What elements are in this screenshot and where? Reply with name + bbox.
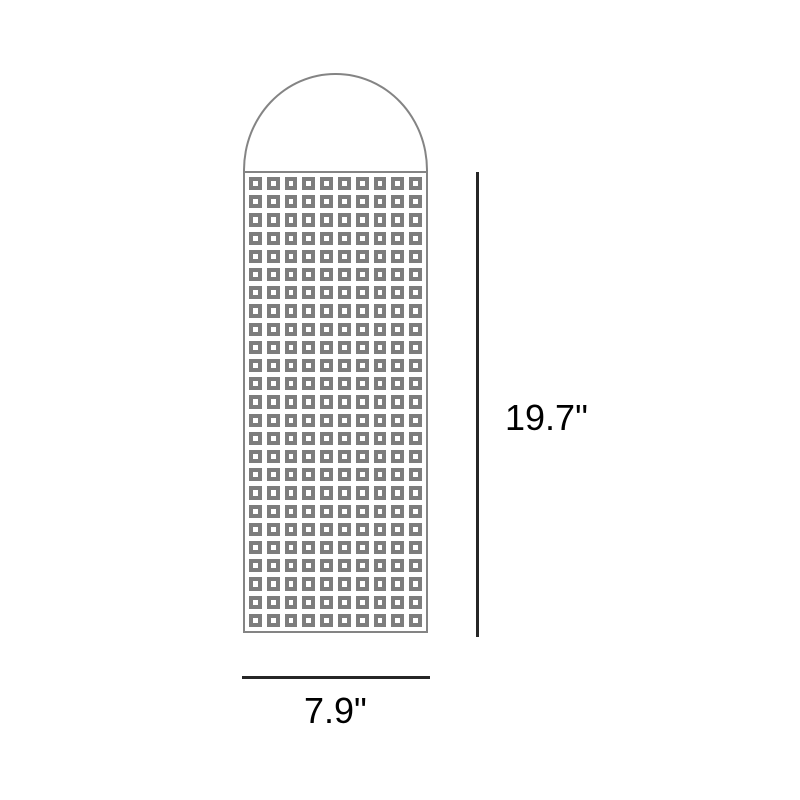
grid-cell — [391, 486, 404, 499]
grid-cell — [356, 468, 369, 481]
grid-cell — [302, 250, 315, 263]
grid-cell — [356, 541, 369, 554]
grid-cell — [391, 596, 404, 609]
grid-cell — [302, 577, 315, 590]
grid-cell — [267, 432, 280, 445]
grid-cell — [409, 268, 422, 281]
grid-cell — [267, 395, 280, 408]
grid-cell — [391, 341, 404, 354]
grid-cell — [285, 432, 298, 445]
grid-cell — [302, 341, 315, 354]
grid-cell — [391, 468, 404, 481]
grid-cell — [338, 559, 351, 572]
grid-cell — [320, 450, 333, 463]
grid-cell — [374, 432, 387, 445]
grid-cell — [374, 213, 387, 226]
grid-cell — [320, 559, 333, 572]
grid-cell — [249, 323, 262, 336]
grid-cell — [338, 304, 351, 317]
height-dimension-line — [476, 172, 479, 637]
grid-cell — [374, 250, 387, 263]
grid-cell — [374, 577, 387, 590]
grid-cell — [285, 505, 298, 518]
grid-cell — [374, 195, 387, 208]
grid-cell — [320, 523, 333, 536]
grid-cell — [391, 395, 404, 408]
grid-cell — [267, 213, 280, 226]
grid-cell — [320, 304, 333, 317]
grid-cell — [338, 486, 351, 499]
grid-cell — [285, 559, 298, 572]
grid-cell — [249, 377, 262, 390]
grid-cell — [267, 596, 280, 609]
grid-cell — [338, 195, 351, 208]
grid-cell — [285, 268, 298, 281]
grid-cell — [391, 559, 404, 572]
width-dimension-line — [242, 676, 430, 679]
grid-cell — [356, 614, 369, 627]
grid-cell — [391, 359, 404, 372]
grid-cell — [356, 268, 369, 281]
grid-cell — [285, 541, 298, 554]
grid-cell — [338, 523, 351, 536]
grid-cell — [374, 541, 387, 554]
grid-cell — [356, 304, 369, 317]
grid-cell — [409, 377, 422, 390]
grid-cell — [409, 505, 422, 518]
grid-cell — [338, 450, 351, 463]
grid-cell — [267, 177, 280, 190]
grid-cell — [267, 577, 280, 590]
grid-cell — [267, 268, 280, 281]
grid-cell — [374, 468, 387, 481]
grid-cell — [374, 286, 387, 299]
grid-cell — [267, 323, 280, 336]
grid-cell — [285, 450, 298, 463]
grid-cell — [338, 468, 351, 481]
grid-cell — [302, 414, 315, 427]
grid-cell — [356, 523, 369, 536]
grid-cell — [338, 213, 351, 226]
grid-cell — [249, 195, 262, 208]
grid-cell — [338, 268, 351, 281]
grid-cell — [409, 614, 422, 627]
grid-cell — [267, 195, 280, 208]
grid-cell — [302, 523, 315, 536]
grid-cell — [391, 232, 404, 245]
grid-cell — [302, 286, 315, 299]
width-dimension-label: 7.9" — [304, 693, 367, 729]
grid-cell — [267, 523, 280, 536]
grid-cell — [338, 395, 351, 408]
grid-cell — [249, 341, 262, 354]
grid-cell — [374, 377, 387, 390]
grid-cell — [409, 414, 422, 427]
grid-cell — [320, 323, 333, 336]
grid-cell — [409, 250, 422, 263]
grid-cell — [356, 359, 369, 372]
grid-cell — [302, 596, 315, 609]
grid-cell — [374, 232, 387, 245]
grid-cell — [374, 614, 387, 627]
grid-cell — [249, 559, 262, 572]
grid-cell — [391, 213, 404, 226]
grid-cell — [356, 341, 369, 354]
grid-cell — [374, 450, 387, 463]
grid-cell — [249, 213, 262, 226]
grid-cell — [267, 468, 280, 481]
grid-cell — [391, 614, 404, 627]
grid-cell — [267, 559, 280, 572]
grid-cell — [374, 323, 387, 336]
grid-cell — [285, 614, 298, 627]
grid-cell — [267, 541, 280, 554]
grid-cell — [285, 359, 298, 372]
grid-cell — [249, 486, 262, 499]
grid-cell — [391, 304, 404, 317]
grid-cell — [356, 195, 369, 208]
grid-cell — [409, 596, 422, 609]
grid-cell — [356, 414, 369, 427]
grid-cell — [391, 432, 404, 445]
lamp-body — [243, 171, 428, 633]
grid-cell — [374, 596, 387, 609]
grid-cell — [267, 341, 280, 354]
grid-cell — [249, 359, 262, 372]
grid-cell — [320, 614, 333, 627]
grid-cell — [285, 414, 298, 427]
grid-cell — [338, 377, 351, 390]
grid-cell — [391, 523, 404, 536]
grid-cell — [391, 286, 404, 299]
grid-cell — [267, 250, 280, 263]
grid-cell — [249, 614, 262, 627]
grid-cell — [356, 213, 369, 226]
grid-cell — [409, 359, 422, 372]
grid-cell — [391, 414, 404, 427]
grid-cell — [249, 177, 262, 190]
grid-cell — [249, 414, 262, 427]
grid-cell — [249, 468, 262, 481]
grid-cell — [320, 286, 333, 299]
grid-cell — [338, 414, 351, 427]
grid-cell — [374, 505, 387, 518]
grid-cell — [356, 432, 369, 445]
grid-cell — [320, 250, 333, 263]
grid-cell — [320, 195, 333, 208]
grid-cell — [409, 213, 422, 226]
grid-cell — [267, 304, 280, 317]
grid-cell — [374, 341, 387, 354]
grid-cell — [391, 268, 404, 281]
grid-cell — [409, 341, 422, 354]
grid-cell — [338, 541, 351, 554]
grid-cell — [409, 450, 422, 463]
grid-cell — [285, 523, 298, 536]
grid-cell — [409, 323, 422, 336]
grid-cell — [356, 395, 369, 408]
grid-cell — [356, 450, 369, 463]
grid-cell — [356, 596, 369, 609]
grid-cell — [338, 323, 351, 336]
grid-cell — [374, 177, 387, 190]
grid-cell — [302, 268, 315, 281]
grid-cell — [374, 268, 387, 281]
grid-cell — [338, 596, 351, 609]
grid-cell — [302, 232, 315, 245]
grid-cell — [320, 359, 333, 372]
grid-cell — [285, 304, 298, 317]
grid-cell — [409, 232, 422, 245]
grid-cell — [320, 432, 333, 445]
grid-cell — [409, 523, 422, 536]
grid-cell — [374, 486, 387, 499]
grid-cell — [302, 359, 315, 372]
grid-cell — [267, 614, 280, 627]
grid-cell — [320, 577, 333, 590]
grid-cell — [267, 505, 280, 518]
grid-cell — [302, 213, 315, 226]
grid-cell — [391, 177, 404, 190]
height-dimension-label: 19.7" — [505, 400, 588, 436]
grid-cell — [320, 468, 333, 481]
grid-cell — [320, 414, 333, 427]
grid-cell — [391, 377, 404, 390]
grid-cell — [409, 432, 422, 445]
grid-cell — [302, 177, 315, 190]
grid-cell — [409, 286, 422, 299]
grid-cell — [338, 341, 351, 354]
grid-cell — [302, 559, 315, 572]
grid-cell — [267, 359, 280, 372]
grid-cell — [356, 232, 369, 245]
grid-cell — [249, 268, 262, 281]
grid-cell — [249, 432, 262, 445]
grid-cell — [338, 177, 351, 190]
grid-cell — [320, 505, 333, 518]
grid-cell — [285, 323, 298, 336]
grid-cell — [356, 486, 369, 499]
grid-cell — [409, 395, 422, 408]
grid-cell — [249, 505, 262, 518]
grid-cell — [356, 559, 369, 572]
grid-cell — [249, 232, 262, 245]
grid-cell — [267, 450, 280, 463]
grid-cell — [249, 450, 262, 463]
grid-cell — [249, 395, 262, 408]
grid-cell — [285, 232, 298, 245]
grid-cell — [285, 377, 298, 390]
grid-cell — [302, 395, 315, 408]
grid-cell — [391, 541, 404, 554]
grid-cell — [391, 195, 404, 208]
grid-cell — [338, 359, 351, 372]
grid-cell — [249, 523, 262, 536]
grid-cell — [338, 432, 351, 445]
grid-cell — [356, 323, 369, 336]
grid-cell — [320, 541, 333, 554]
grid-cell — [374, 559, 387, 572]
grid-cell — [302, 486, 315, 499]
grid-cell — [338, 614, 351, 627]
grid-cell — [409, 541, 422, 554]
grid-cell — [338, 250, 351, 263]
grid-cell — [285, 341, 298, 354]
grid-cell — [302, 450, 315, 463]
grid-cell — [249, 596, 262, 609]
grid-cell — [249, 541, 262, 554]
grid-cell — [302, 323, 315, 336]
grid-cell — [285, 213, 298, 226]
grid-cell — [409, 195, 422, 208]
grid-cell — [302, 377, 315, 390]
grid-cell — [285, 250, 298, 263]
grid-cell — [391, 505, 404, 518]
grid-cell — [391, 250, 404, 263]
grid-cell — [302, 541, 315, 554]
grid-cell — [285, 195, 298, 208]
grid-cell — [391, 323, 404, 336]
grid-cell — [285, 596, 298, 609]
grid-cell — [338, 505, 351, 518]
grid-cell — [285, 395, 298, 408]
grid-cell — [320, 377, 333, 390]
grid-cell — [285, 577, 298, 590]
grid-cell — [391, 450, 404, 463]
lamp-dome — [243, 73, 428, 171]
grid-cell — [249, 250, 262, 263]
grid-cell — [302, 505, 315, 518]
grid-cell — [302, 432, 315, 445]
grid-cell — [320, 213, 333, 226]
grid-cell — [338, 286, 351, 299]
grid-cell — [391, 577, 404, 590]
grid-cell — [267, 377, 280, 390]
grid-cell — [320, 596, 333, 609]
grid-cell — [249, 577, 262, 590]
grid-cell — [356, 177, 369, 190]
grid-cell — [356, 377, 369, 390]
grid-cell — [374, 523, 387, 536]
grid-cell — [285, 177, 298, 190]
grid-cell — [302, 195, 315, 208]
grid-cell — [356, 250, 369, 263]
grid-cell — [356, 577, 369, 590]
grid-cell — [320, 395, 333, 408]
grid-cell — [409, 559, 422, 572]
grid-cell — [374, 414, 387, 427]
grid-cell — [320, 486, 333, 499]
product-dimension-diagram: 19.7" 7.9" — [0, 0, 800, 800]
grid-cell — [320, 232, 333, 245]
grid-cell — [320, 177, 333, 190]
grid-cell — [249, 304, 262, 317]
grid-cell — [356, 286, 369, 299]
grid-cell — [249, 286, 262, 299]
grid-cell — [374, 395, 387, 408]
grid-cell — [338, 577, 351, 590]
grid-cell — [409, 177, 422, 190]
grid-cell — [267, 486, 280, 499]
grid-cell — [320, 268, 333, 281]
grid-cell — [409, 468, 422, 481]
grid-cell — [302, 468, 315, 481]
grid-cell — [285, 468, 298, 481]
grid-cell — [409, 486, 422, 499]
grid-cell — [409, 304, 422, 317]
grid-cell — [356, 505, 369, 518]
grid-cell — [302, 614, 315, 627]
grid-cell — [338, 232, 351, 245]
grid-cell — [267, 232, 280, 245]
grid-cell — [320, 341, 333, 354]
grid-cell — [302, 304, 315, 317]
grid-cell — [374, 359, 387, 372]
grid-cell — [285, 286, 298, 299]
grid-cell — [267, 414, 280, 427]
grid-cell — [374, 304, 387, 317]
grid-cell — [285, 486, 298, 499]
lamp-grid — [245, 173, 426, 631]
grid-cell — [267, 286, 280, 299]
grid-cell — [409, 577, 422, 590]
